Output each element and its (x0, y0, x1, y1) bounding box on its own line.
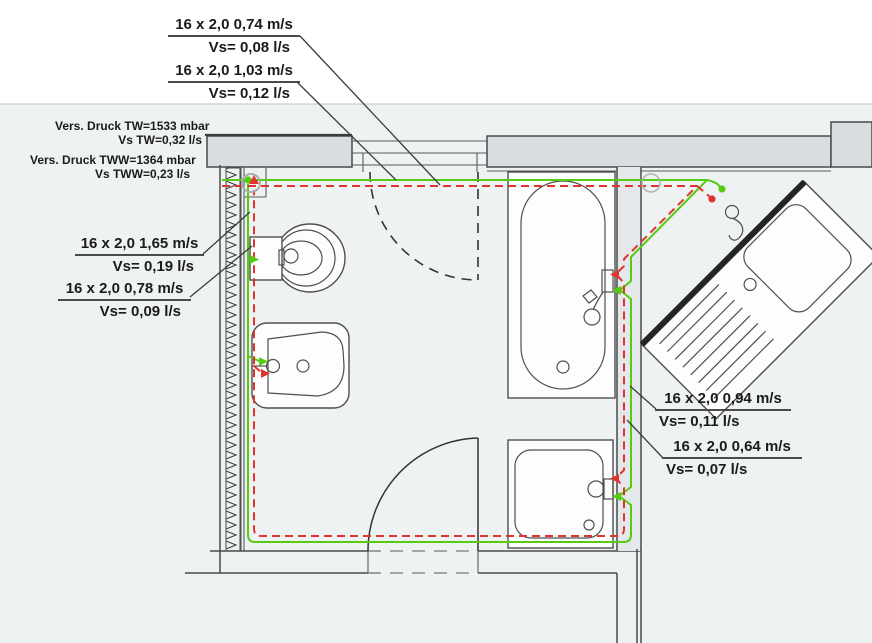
annotation-pipe-right-2: 16 x 2,0 0,64 m/s Vs= 0,07 l/s (662, 438, 802, 479)
flow-rate-label: Vs= 0,07 l/s (662, 459, 802, 479)
top-wall-left (207, 136, 352, 167)
pipe-spec-label: 16 x 2,0 0,74 m/s (168, 16, 300, 37)
pipe-spec-label: 16 x 2,0 0,78 m/s (58, 280, 191, 301)
flow-rate-label: Vs= 0,12 l/s (168, 83, 300, 103)
annotation-pipe-top-2: 16 x 2,0 1,03 m/s Vs= 0,12 l/s (168, 62, 300, 103)
supply-flow-label: Vs TWW=0,23 l/s (30, 167, 190, 181)
annotation-pipe-right-1: 16 x 2,0 0,94 m/s Vs= 0,11 l/s (655, 390, 791, 431)
pipe-spec-label: 16 x 2,0 1,03 m/s (168, 62, 300, 83)
annotation-pipe-left-1: 16 x 2,0 1,65 m/s Vs= 0,19 l/s (75, 235, 204, 276)
annotation-supply-cold: Vers. Druck TW=1533 mbar Vs TW=0,32 l/s (55, 119, 202, 147)
floor-plan-drawing: 16 x 2,0 0,74 m/s Vs= 0,08 l/s 16 x 2,0 … (0, 0, 872, 643)
plan-canvas (0, 0, 872, 643)
annotation-pipe-top-1: 16 x 2,0 0,74 m/s Vs= 0,08 l/s (168, 16, 300, 57)
flow-rate-label: Vs= 0,11 l/s (655, 411, 791, 431)
pipe-spec-label: 16 x 2,0 0,94 m/s (655, 390, 791, 411)
annotation-pipe-left-2: 16 x 2,0 0,78 m/s Vs= 0,09 l/s (58, 280, 191, 321)
annotation-supply-hot: Vers. Druck TWW=1364 mbar Vs TWW=0,23 l/… (30, 153, 190, 181)
top-wall-corner (831, 122, 872, 167)
flow-rate-label: Vs= 0,09 l/s (58, 301, 191, 321)
pipe-spec-label: 16 x 2,0 1,65 m/s (75, 235, 204, 256)
washbasin (252, 323, 349, 408)
supply-flow-label: Vs TW=0,32 l/s (55, 133, 202, 147)
pipe-spec-label: 16 x 2,0 0,64 m/s (662, 438, 802, 459)
bathtub (508, 172, 615, 398)
shower (508, 440, 613, 548)
supply-pressure-label: Vers. Druck TWW=1364 mbar (30, 153, 190, 167)
flow-rate-label: Vs= 0,08 l/s (168, 37, 300, 57)
flow-rate-label: Vs= 0,19 l/s (75, 256, 204, 276)
supply-pressure-label: Vers. Druck TW=1533 mbar (55, 119, 202, 133)
top-wall-right (487, 136, 831, 167)
